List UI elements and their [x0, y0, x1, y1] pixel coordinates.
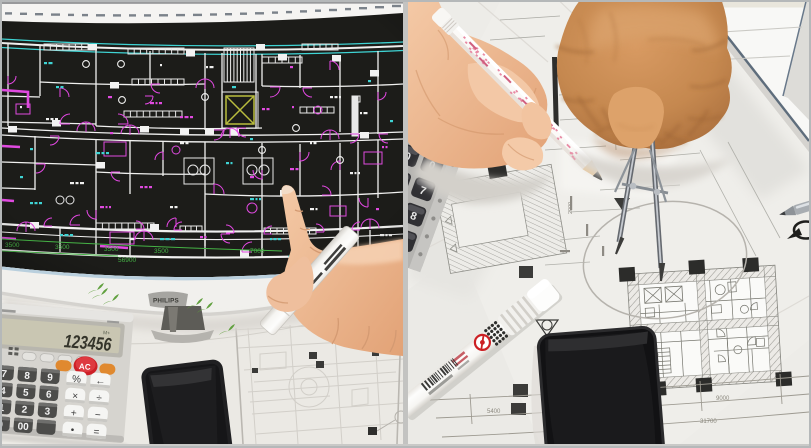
svg-text:31700: 31700: [700, 419, 717, 425]
svg-text:+: +: [70, 408, 77, 419]
svg-text:PHILIPS: PHILIPS: [153, 298, 179, 305]
svg-text:9000: 9000: [716, 396, 730, 402]
svg-text:×: ×: [72, 391, 79, 402]
svg-text:00: 00: [17, 421, 29, 433]
svg-text:M+: M+: [103, 330, 111, 337]
svg-text:%: %: [72, 374, 82, 386]
svg-text:←: ←: [95, 376, 106, 388]
svg-text:−: −: [94, 410, 101, 421]
svg-text:5400: 5400: [487, 409, 501, 415]
svg-text:2000: 2000: [568, 202, 574, 214]
svg-text:AC: AC: [79, 362, 91, 372]
svg-text:=: =: [93, 427, 100, 438]
